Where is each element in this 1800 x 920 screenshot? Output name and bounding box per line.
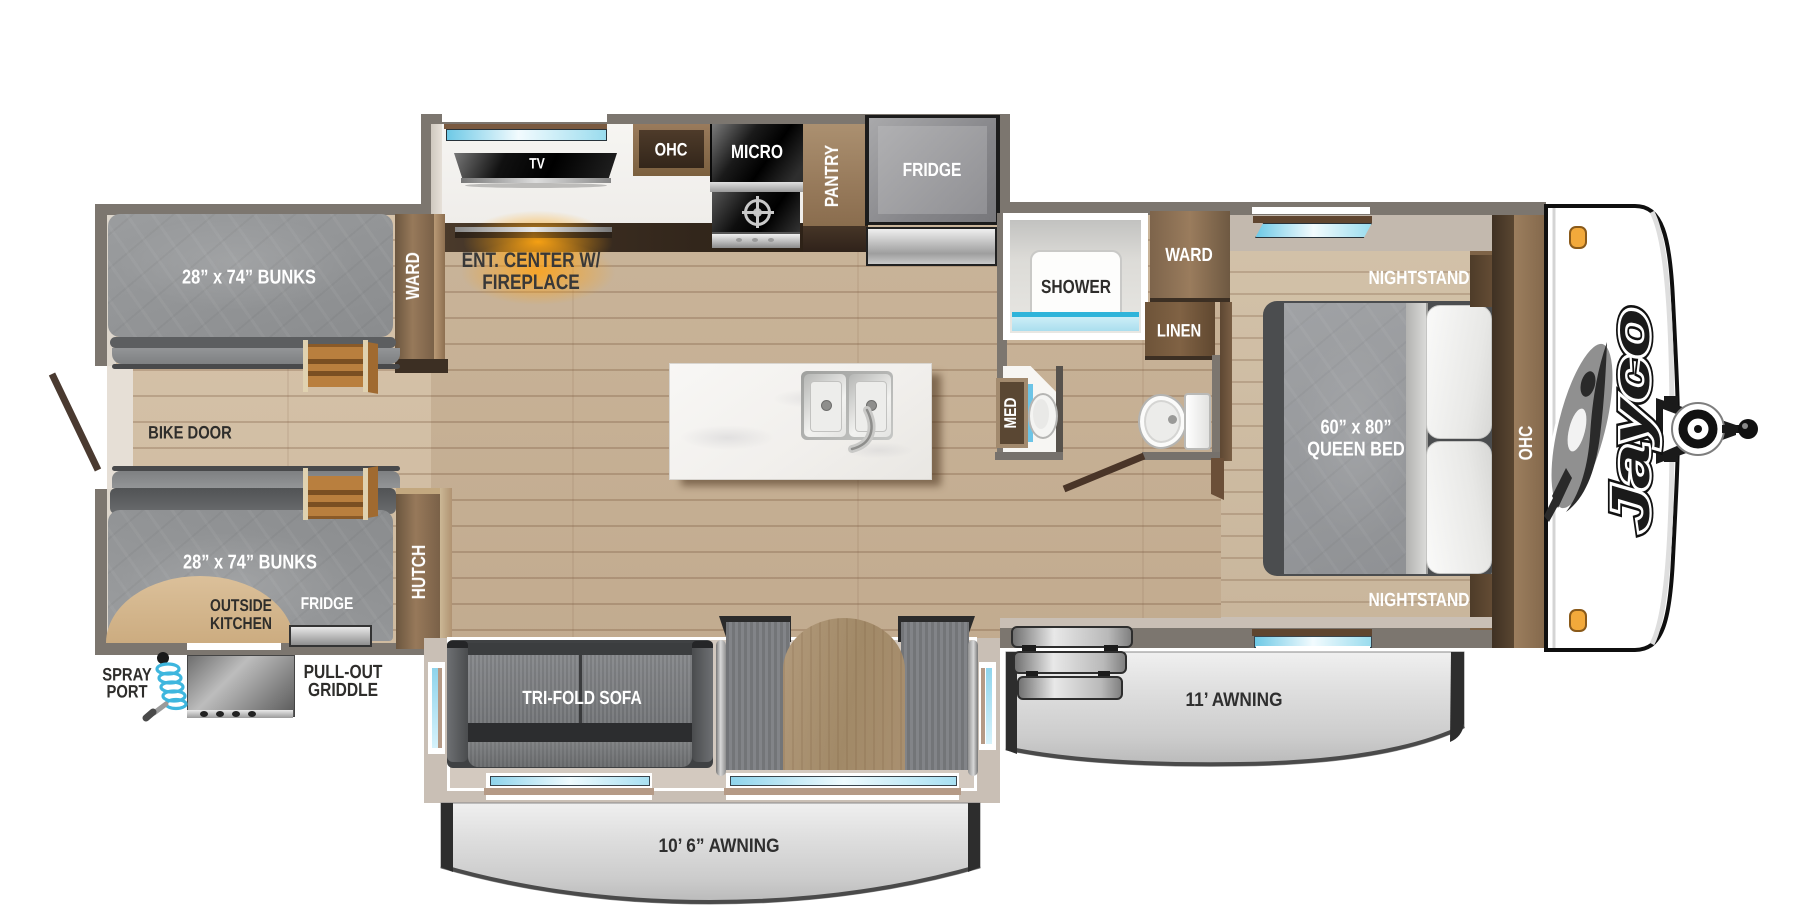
- svg-text:11’ AWNING: 11’ AWNING: [1186, 690, 1283, 711]
- svg-text:10’ 6” AWNING: 10’ 6” AWNING: [659, 836, 780, 857]
- svg-text:Jayco: Jayco: [1600, 310, 1660, 532]
